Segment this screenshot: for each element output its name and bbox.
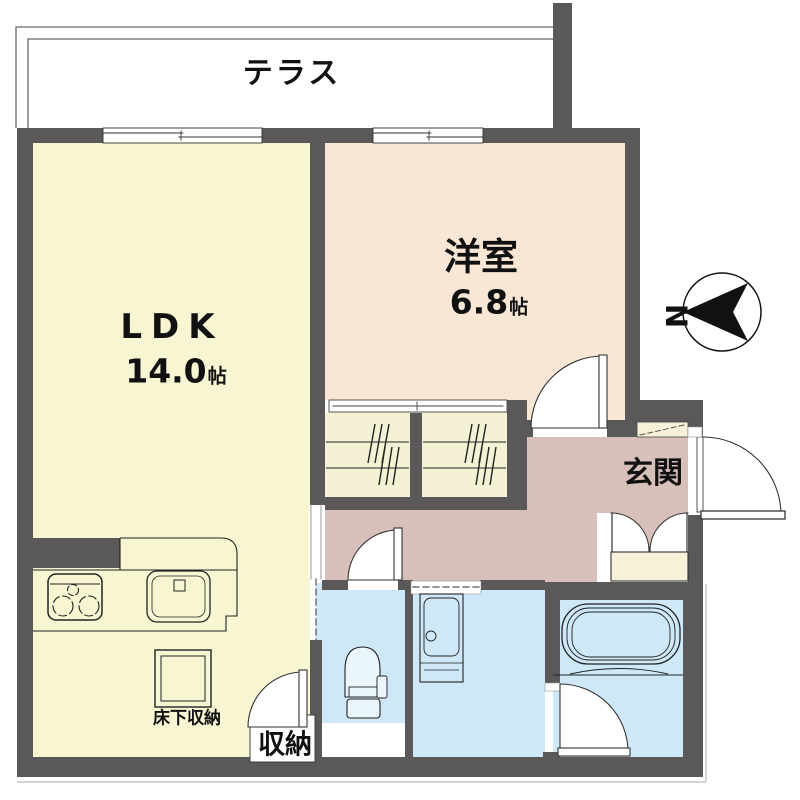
- ldk-size-value: 14.0: [125, 352, 206, 391]
- ldk-label: LDK: [120, 310, 223, 344]
- terrace-side-wall: [553, 3, 572, 143]
- ldk-floor: [33, 143, 310, 758]
- storage-label: 収納: [258, 732, 312, 759]
- western-room-size-unit: 帖: [509, 296, 528, 319]
- entrance-door: [697, 437, 785, 519]
- compass-north-label: N: [664, 304, 693, 328]
- shoe-cabinet: [611, 552, 688, 581]
- closet-sliding-door: [325, 400, 507, 413]
- shoe-cabinet-doors: [597, 513, 688, 551]
- floor-plan-drawing: [0, 0, 800, 800]
- hallway-floor-2: [527, 437, 597, 510]
- western-room-label: 洋室: [444, 239, 518, 276]
- kitchen-wall-stub: [17, 538, 120, 568]
- washroom-door: [411, 581, 481, 594]
- ldk-window: [103, 128, 262, 143]
- western-room-size-label: 6.8帖: [450, 286, 529, 319]
- underfloor-storage-label: 床下収納: [153, 711, 221, 728]
- washroom-floor: [413, 583, 545, 760]
- western-room-window: [373, 128, 483, 143]
- ldk-size-label: 14.0帖: [125, 355, 227, 388]
- floor-plan: テラス LDK 14.0帖 洋室 6.8帖 玄関 床下収納 収納 N: [0, 0, 800, 800]
- western-room-size-value: 6.8: [450, 283, 508, 322]
- entrance-label: 玄関: [623, 459, 683, 489]
- terrace-label: テラス: [243, 59, 341, 89]
- ldk-size-unit: 帖: [208, 365, 227, 388]
- compass-icon: [683, 273, 761, 351]
